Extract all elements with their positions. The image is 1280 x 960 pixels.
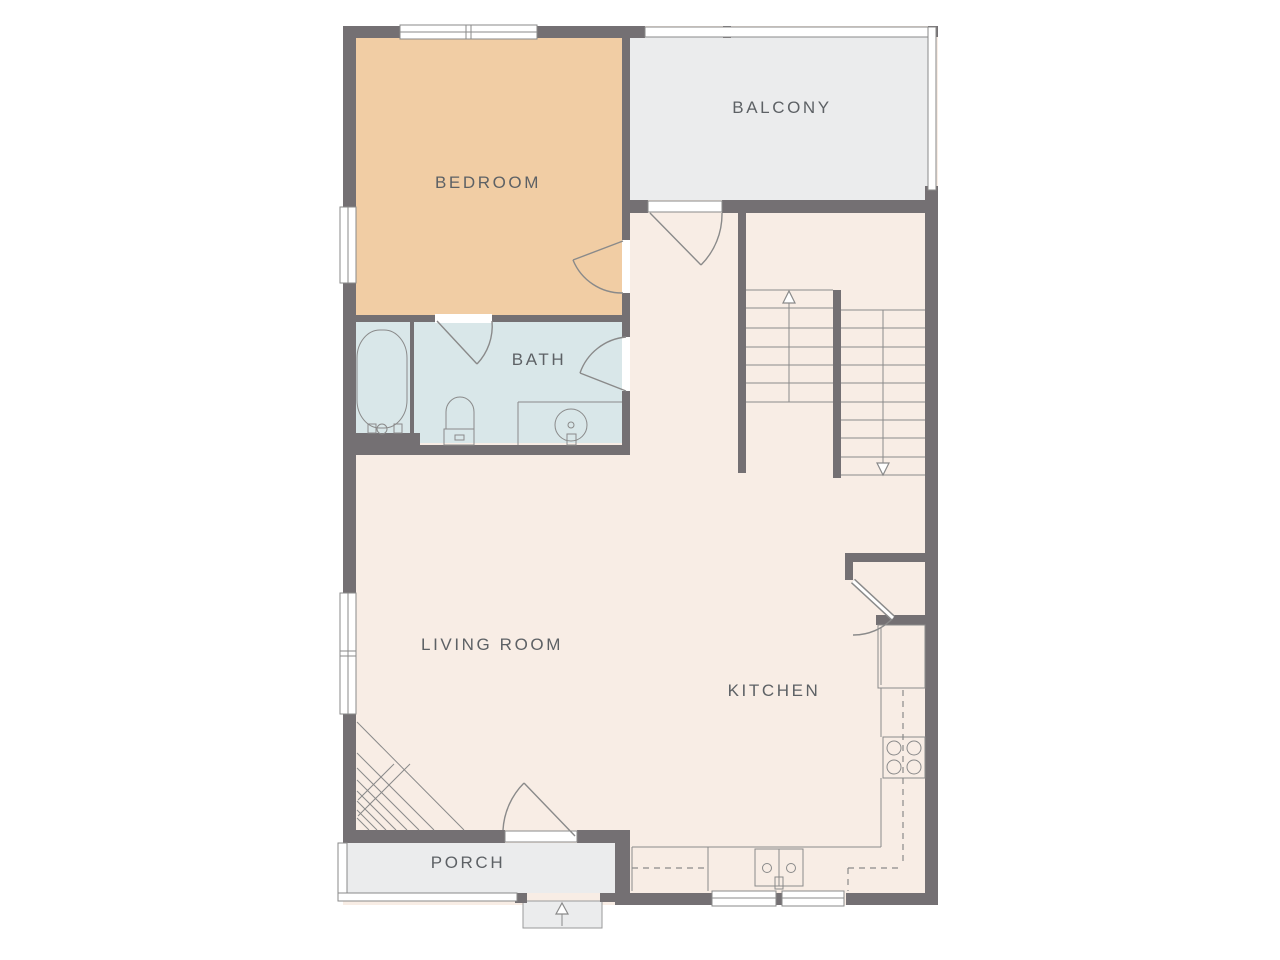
room-label-living-room: LIVING ROOM xyxy=(421,635,563,655)
bedroom-left-window xyxy=(340,207,356,283)
kitchen-window-left xyxy=(712,891,776,906)
room-label-balcony: BALCONY xyxy=(732,98,831,118)
bedroom-top-window xyxy=(400,25,537,39)
room-label-kitchen: KITCHEN xyxy=(728,681,821,701)
floor-plan-canvas: BEDROOM BALCONY BATH LIVING ROOM KITCHEN… xyxy=(0,0,1280,960)
kitchen-window-right xyxy=(782,891,844,906)
floor-plan-drawing xyxy=(0,0,1280,960)
room-label-bedroom: BEDROOM xyxy=(435,173,541,193)
living-room-window xyxy=(340,593,356,714)
room-label-bath: BATH xyxy=(512,350,566,370)
floor-fills xyxy=(343,26,938,928)
bath-floor xyxy=(356,322,622,443)
balcony-floor xyxy=(630,37,928,200)
room-label-porch: PORCH xyxy=(431,853,505,873)
